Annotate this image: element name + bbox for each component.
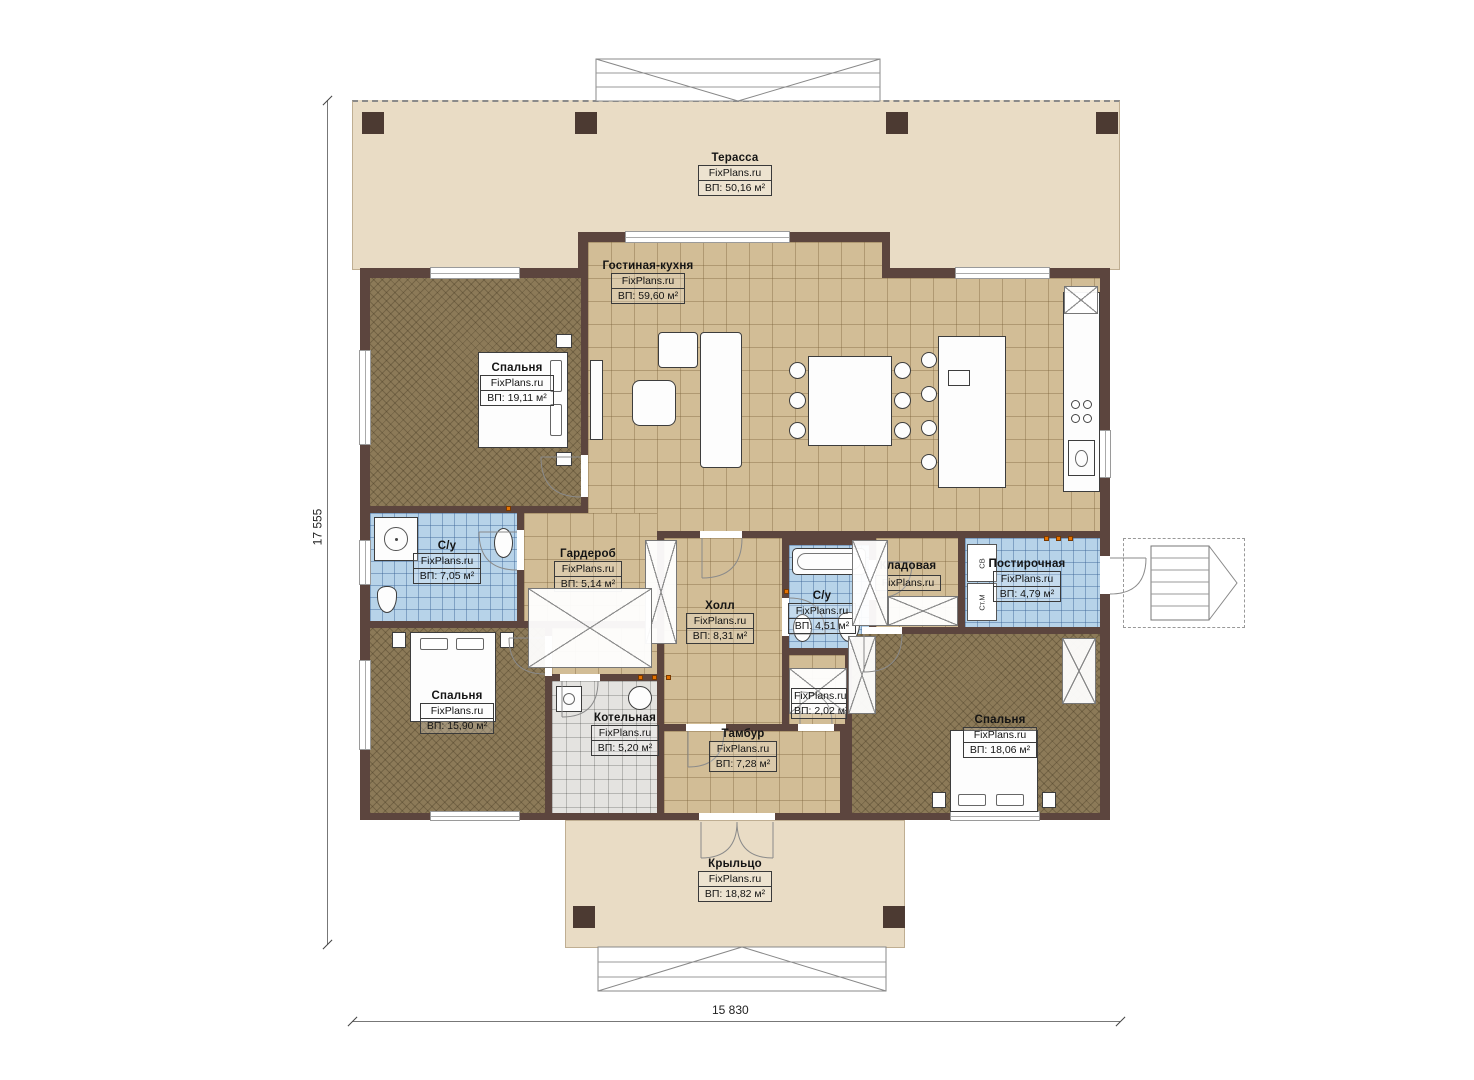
- marker: [652, 675, 657, 680]
- pillow: [550, 404, 562, 436]
- dimension-width-label: 15 830: [712, 1003, 749, 1017]
- window: [430, 811, 520, 821]
- tv-stand: [590, 360, 603, 440]
- stove-burner: [1083, 414, 1092, 423]
- dining-chair: [894, 422, 911, 439]
- porch-pillar: [883, 906, 905, 928]
- door-opening: [581, 455, 588, 497]
- window: [1099, 430, 1111, 478]
- nightstand: [392, 632, 406, 648]
- dining-chair: [789, 362, 806, 379]
- stove-burner: [1071, 414, 1080, 423]
- marker: [1056, 536, 1061, 541]
- nightstand: [500, 632, 514, 648]
- hatch-strip: [848, 636, 876, 714]
- bar-stool: [921, 420, 937, 436]
- pillow: [456, 638, 484, 650]
- marker: [638, 675, 643, 680]
- island-sink: [948, 370, 970, 386]
- label-living: Гостиная-кухня FixPlans.ru ВП: 59,60 м²: [588, 260, 708, 304]
- window: [430, 267, 520, 279]
- label-boiler: Котельная FixPlans.ru ВП: 5,20 м²: [565, 712, 685, 756]
- label-bedroom-tl: Спальня FixPlans.ru ВП: 19,11 м²: [457, 362, 577, 406]
- dimension-height-label: 17 555: [310, 509, 324, 546]
- window: [359, 660, 371, 750]
- floorplan-canvas: 17 555 15 830: [0, 0, 1474, 1080]
- window: [950, 811, 1040, 821]
- nightstand: [556, 334, 572, 348]
- dining-chair: [894, 362, 911, 379]
- dining-table: [808, 356, 892, 446]
- door-opening: [1100, 556, 1110, 594]
- window: [625, 231, 790, 243]
- pillow: [420, 638, 448, 650]
- kitchen-island: [938, 336, 1006, 488]
- pillow: [958, 794, 986, 806]
- door-opening: [700, 531, 742, 538]
- marker: [506, 506, 511, 511]
- dimension-line-bottom: [352, 1021, 1120, 1022]
- label-laundry: Постирочная FixPlans.ru ВП: 4,79 м²: [967, 558, 1087, 602]
- nightstand: [1042, 792, 1056, 808]
- porch-pillar: [573, 906, 595, 928]
- label-terrace: Терасса FixPlans.ru ВП: 50,16 м²: [675, 152, 795, 196]
- door-opening: [798, 724, 834, 731]
- door-opening: [517, 530, 524, 570]
- closet-wardrobe: [528, 588, 652, 668]
- dining-chair: [789, 392, 806, 409]
- kitchen-sink: [1068, 440, 1095, 476]
- label-porch: Крыльцо FixPlans.ru ВП: 18,82 м²: [675, 858, 795, 902]
- boiler-tank: [628, 686, 652, 710]
- window: [359, 350, 371, 445]
- label-bedroom-br: Спальня FixPlans.ru ВП: 18,06 м²: [940, 714, 1060, 758]
- terrace-pillar: [575, 112, 597, 134]
- label-vestibule: Тамбур FixPlans.ru ВП: 7,28 м²: [683, 728, 803, 772]
- door-opening: [560, 674, 600, 681]
- water-heater: [556, 686, 582, 712]
- marker: [666, 675, 671, 680]
- label-closet-small: FixPlans.ru ВП: 2,02 м²: [791, 688, 845, 724]
- armchair: [658, 332, 698, 368]
- door-opening: [699, 813, 775, 820]
- side-steps: [1123, 538, 1245, 628]
- pillow: [996, 794, 1024, 806]
- roof-overhang-bottom: [597, 946, 887, 992]
- window: [359, 540, 371, 585]
- roof-overhang-top: [595, 58, 881, 102]
- dining-chair: [894, 392, 911, 409]
- closet-bedroom-br: [1062, 638, 1096, 704]
- bar-stool: [921, 352, 937, 368]
- marker: [1068, 536, 1073, 541]
- nightstand: [932, 792, 946, 808]
- stove-burner: [1071, 400, 1080, 409]
- terrace-pillar: [1096, 112, 1118, 134]
- bar-stool: [921, 454, 937, 470]
- nightstand: [556, 452, 572, 466]
- dining-chair: [789, 422, 806, 439]
- marker: [1044, 536, 1049, 541]
- window: [955, 267, 1050, 279]
- closet-pantry-bottom: [888, 596, 958, 626]
- bar-stool: [921, 386, 937, 402]
- label-wardrobe: Гардероб FixPlans.ru ВП: 5,14 м²: [528, 548, 648, 592]
- label-bath-left: С/у FixPlans.ru ВП: 7,05 м²: [387, 540, 507, 584]
- kitchen-corner-appliance: [1064, 286, 1098, 314]
- terrace-pillar: [886, 112, 908, 134]
- closet-pantry-vertical: [852, 540, 888, 626]
- stove-burner: [1083, 400, 1092, 409]
- dimension-line-left: [327, 100, 328, 945]
- terrace-pillar: [362, 112, 384, 134]
- coffee-table: [632, 380, 676, 426]
- label-bedroom-bl: Спальня FixPlans.ru ВП: 15,90 м²: [397, 690, 517, 734]
- sofa: [700, 332, 742, 468]
